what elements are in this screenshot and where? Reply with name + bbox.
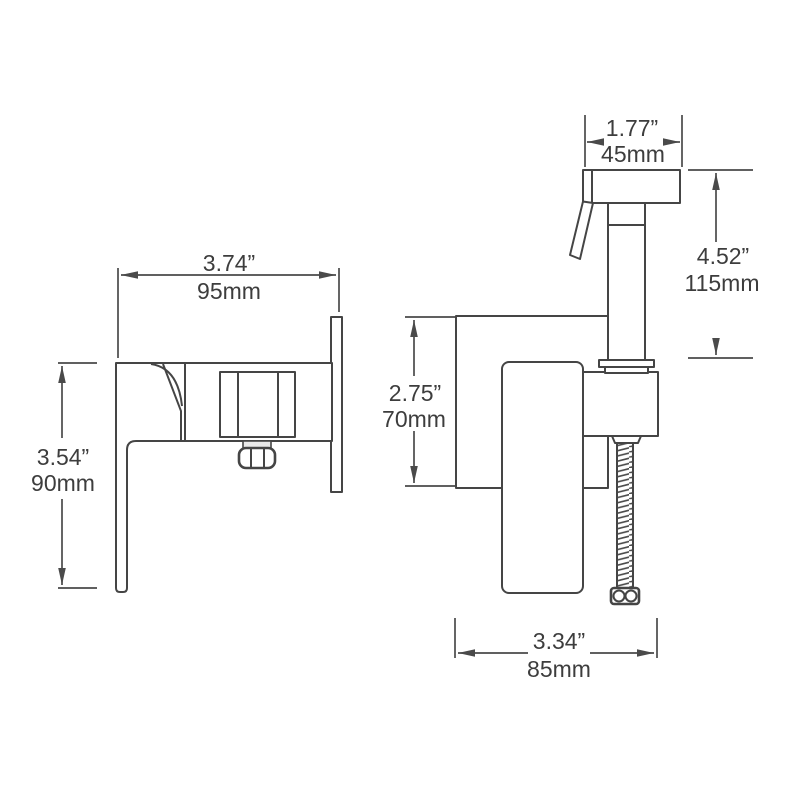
front-holder-block bbox=[583, 372, 658, 436]
sprayer-trigger bbox=[570, 202, 593, 260]
side-view: 3.74” 95mm 3.54” 90mm bbox=[31, 250, 342, 592]
dimension-label-inches: 3.34” bbox=[533, 628, 585, 654]
dimension-label-inches: 3.74” bbox=[203, 250, 255, 276]
side-height-dimension: 3.54” 90mm bbox=[31, 363, 97, 588]
technical-drawing-canvas: 3.74” 95mm 3.54” 90mm bbox=[0, 0, 800, 800]
side-cartridge bbox=[220, 372, 295, 437]
side-handle-lever bbox=[116, 363, 185, 592]
body-height-dimension: 2.75” 70mm bbox=[382, 317, 455, 486]
dimension-label-inches: 3.54” bbox=[37, 444, 89, 470]
head-width-dimension: 1.77” 45mm bbox=[585, 115, 682, 167]
dimension-label-mm: 45mm bbox=[601, 141, 665, 167]
dimension-label-inches: 1.77” bbox=[606, 115, 658, 141]
side-nut-hex bbox=[239, 448, 275, 468]
flexible-hose bbox=[617, 443, 633, 588]
dimension-label-inches: 2.75” bbox=[389, 380, 441, 406]
hose-end-fitting-hole bbox=[626, 591, 637, 602]
front-valve-body bbox=[502, 362, 583, 593]
hose-connector bbox=[612, 436, 641, 443]
tube-base-flange bbox=[599, 360, 654, 367]
sprayer-tube bbox=[608, 203, 645, 360]
side-mounting-nut bbox=[239, 441, 275, 468]
hose-end-fitting-hole bbox=[614, 591, 625, 602]
hose-end-fitting bbox=[611, 588, 639, 604]
sprayer-height-dimension: 4.52” 115mm bbox=[685, 170, 760, 358]
dimension-label-mm: 115mm bbox=[685, 270, 760, 296]
dimension-label-mm: 85mm bbox=[527, 656, 591, 682]
dimension-label-mm: 90mm bbox=[31, 470, 95, 496]
tube-base-step bbox=[605, 367, 648, 373]
dimension-drawing: 3.74” 95mm 3.54” 90mm bbox=[0, 0, 800, 800]
side-cartridge-outline bbox=[220, 372, 295, 437]
sprayer-head bbox=[583, 170, 680, 203]
side-width-dimension: 3.74” 95mm bbox=[118, 250, 339, 358]
dimension-label-mm: 70mm bbox=[382, 406, 446, 432]
dimension-label-mm: 95mm bbox=[197, 278, 261, 304]
front-view: 1.77” 45mm 4.52” 115mm 2.75” 70mm bbox=[382, 115, 759, 682]
dimension-label-inches: 4.52” bbox=[697, 243, 749, 269]
body-width-dimension: 3.34” 85mm bbox=[455, 618, 657, 682]
